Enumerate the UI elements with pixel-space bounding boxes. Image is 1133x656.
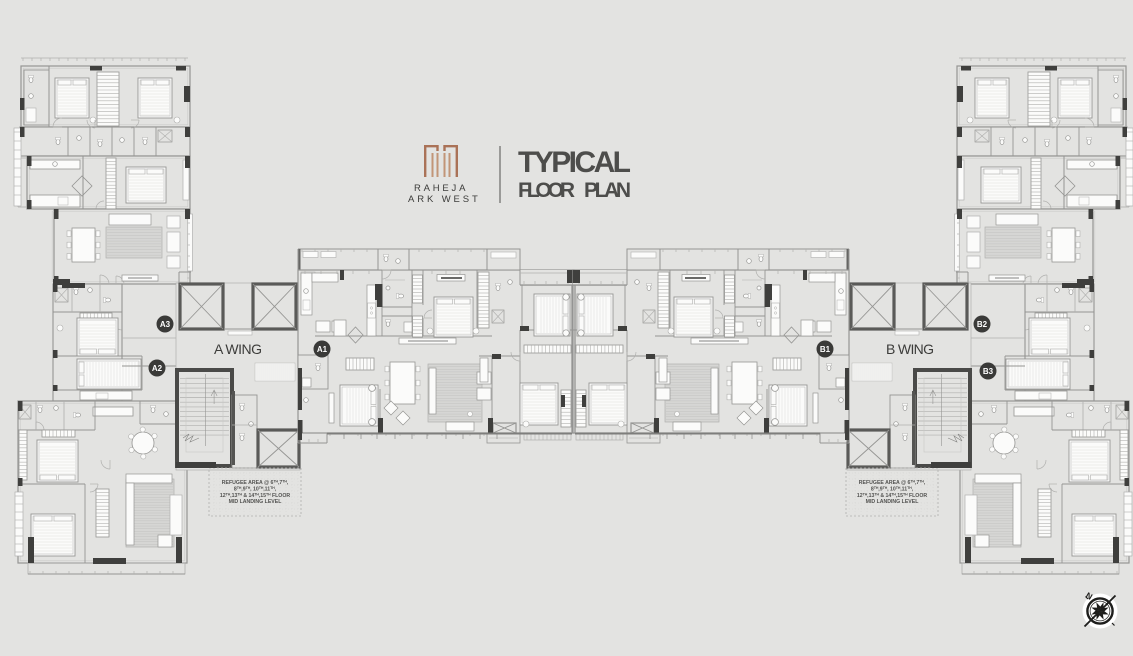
svg-text:MID LANDING LEVEL: MID LANDING LEVEL: [229, 499, 283, 505]
svg-text:A2: A2: [152, 364, 163, 373]
svg-text:A3: A3: [160, 320, 171, 329]
svg-text:8ᵀᴴ,9ᵀᴴ, 10ᵀᴴ,11ᵀᴴ,: 8ᵀᴴ,9ᵀᴴ, 10ᵀᴴ,11ᵀᴴ,: [871, 486, 914, 492]
svg-text:B2: B2: [977, 320, 988, 329]
svg-text:B WING: B WING: [886, 341, 936, 357]
svg-text:REFUGEE AREA @ 6ᵀᴴ,7ᵀᴴ,: REFUGEE AREA @ 6ᵀᴴ,7ᵀᴴ,: [859, 480, 926, 486]
svg-text:ARK WEST: ARK WEST: [408, 194, 480, 205]
svg-text:A WING: A WING: [214, 341, 264, 357]
svg-text:12ᵀᴴ,13ᵀᴴ & 14ᵀᴴ,15ᵀᴴ FLOOR: 12ᵀᴴ,13ᵀᴴ & 14ᵀᴴ,15ᵀᴴ FLOOR: [220, 493, 290, 499]
svg-text:PLAN: PLAN: [584, 179, 631, 202]
svg-text:FLOOR: FLOOR: [518, 179, 575, 202]
svg-text:TYPICAL: TYPICAL: [518, 146, 631, 179]
svg-text:RAHEJA: RAHEJA: [414, 183, 468, 194]
svg-text:MID LANDING LEVEL: MID LANDING LEVEL: [866, 499, 920, 505]
svg-text:A1: A1: [317, 345, 328, 354]
svg-text:REFUGEE AREA @ 6ᵀᴴ,7ᵀᴴ,: REFUGEE AREA @ 6ᵀᴴ,7ᵀᴴ,: [222, 480, 289, 486]
svg-text:12ᵀᴴ,13ᵀᴴ & 14ᵀᴴ,15ᵀᴴ FLOOR: 12ᵀᴴ,13ᵀᴴ & 14ᵀᴴ,15ᵀᴴ FLOOR: [857, 493, 927, 499]
svg-text:B1: B1: [820, 345, 831, 354]
svg-text:B3: B3: [983, 367, 994, 376]
svg-text:8ᵀᴴ,9ᵀᴴ, 10ᵀᴴ,11ᵀᴴ,: 8ᵀᴴ,9ᵀᴴ, 10ᵀᴴ,11ᵀᴴ,: [234, 486, 277, 492]
